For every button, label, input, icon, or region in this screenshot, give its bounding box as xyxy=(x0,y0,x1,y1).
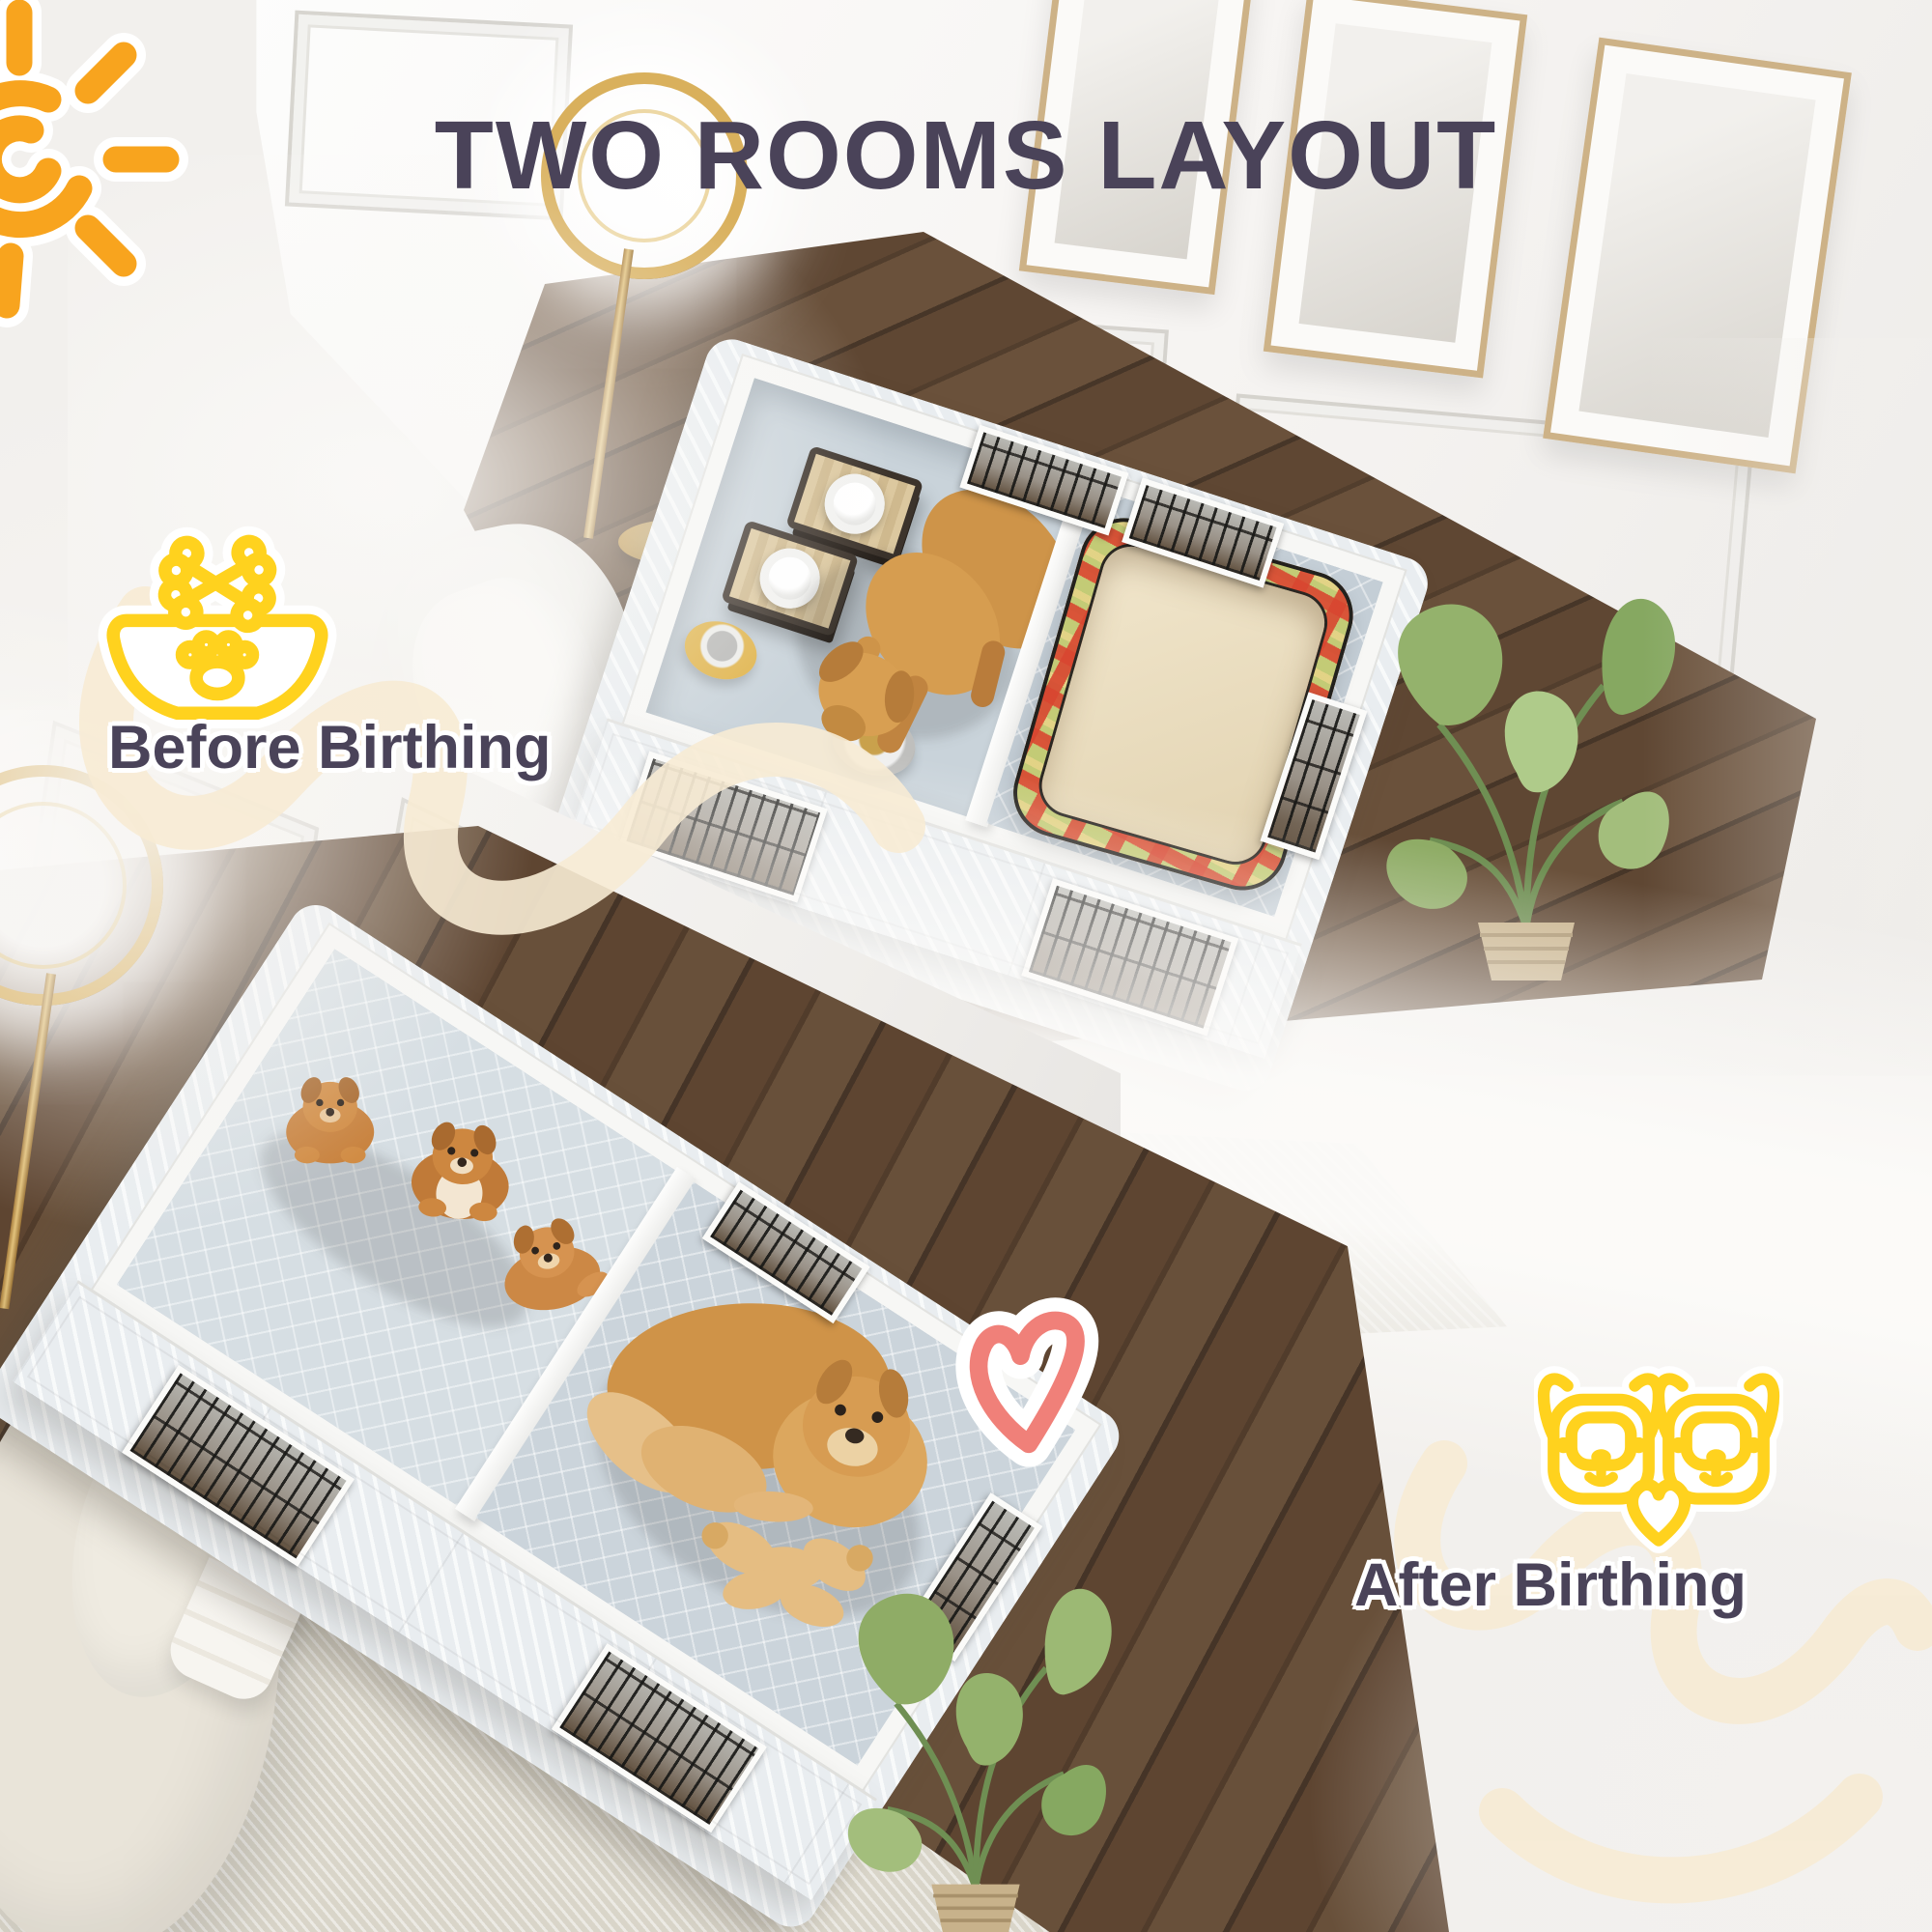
before-birthing-label: Before Birthing xyxy=(108,713,552,782)
after-birthing-label: After Birthing xyxy=(1354,1550,1747,1620)
product-infographic: TWO ROOMS LAYOUT Before Birthing xyxy=(0,0,1932,1932)
two-dogs-heart-icon xyxy=(1534,1364,1783,1557)
heart-icon xyxy=(937,1276,1135,1487)
page-title: TWO ROOMS LAYOUT xyxy=(435,100,1498,212)
sun-icon xyxy=(0,0,203,343)
monstera-plant xyxy=(831,1536,1121,1932)
